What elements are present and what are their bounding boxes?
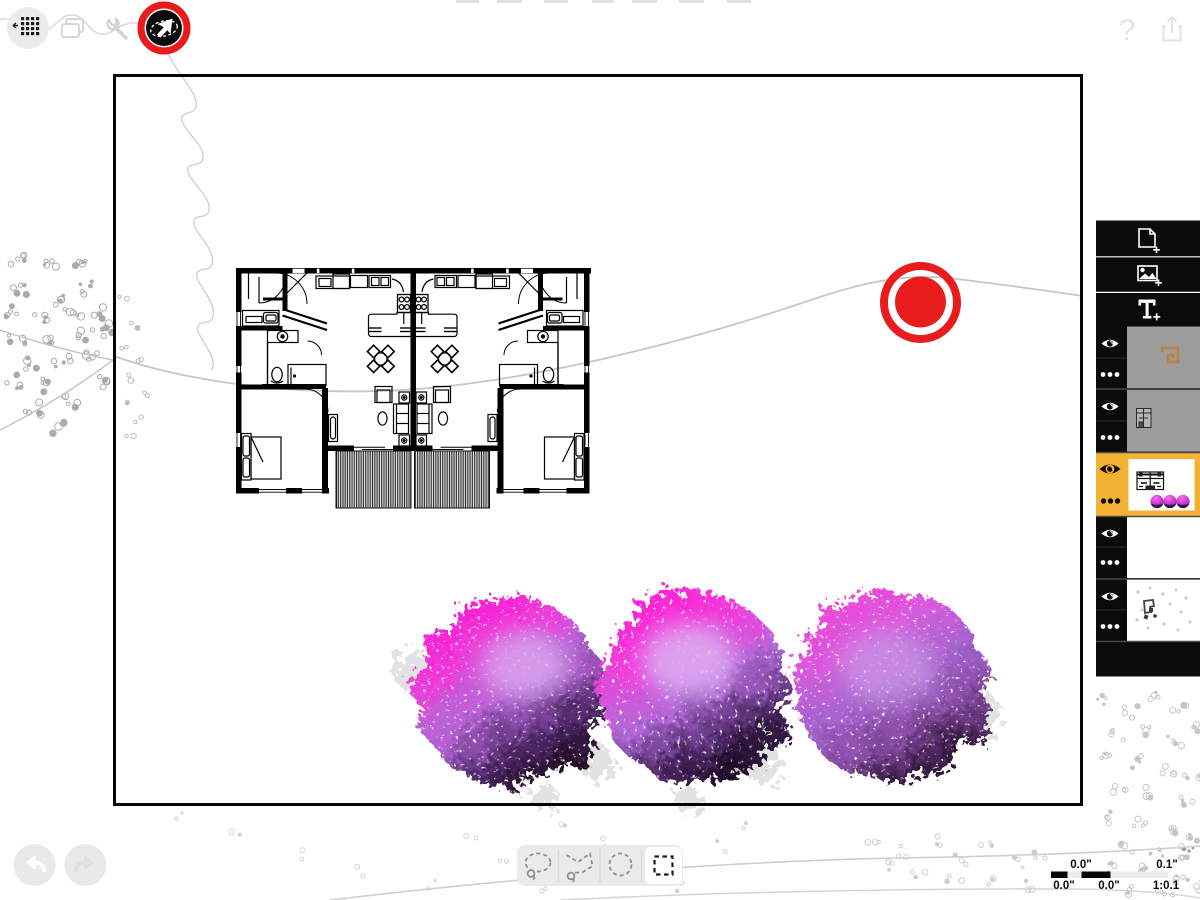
svg-text:0.0": 0.0": [1053, 880, 1074, 892]
svg-text:1:0.1: 1:0.1: [1153, 880, 1180, 892]
svg-text:0.1": 0.1": [1156, 859, 1177, 871]
svg-text:?: ?: [1119, 14, 1136, 47]
svg-text:0.0": 0.0": [1070, 859, 1091, 871]
svg-text:0.0": 0.0": [1098, 880, 1119, 892]
